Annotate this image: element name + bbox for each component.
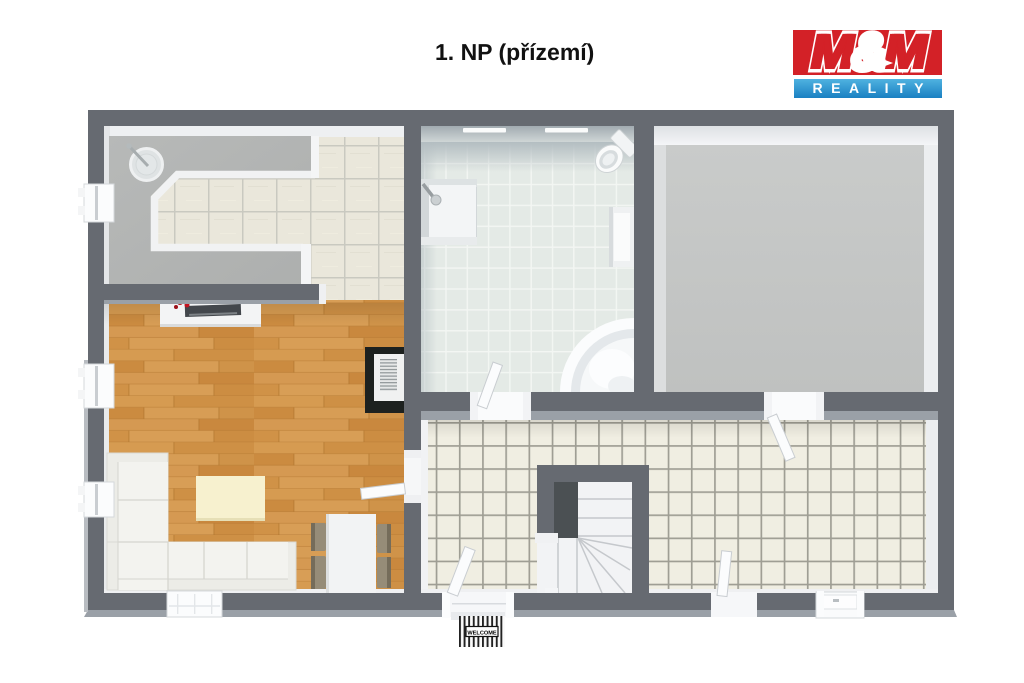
svg-text:WELCOME: WELCOME bbox=[467, 631, 496, 637]
